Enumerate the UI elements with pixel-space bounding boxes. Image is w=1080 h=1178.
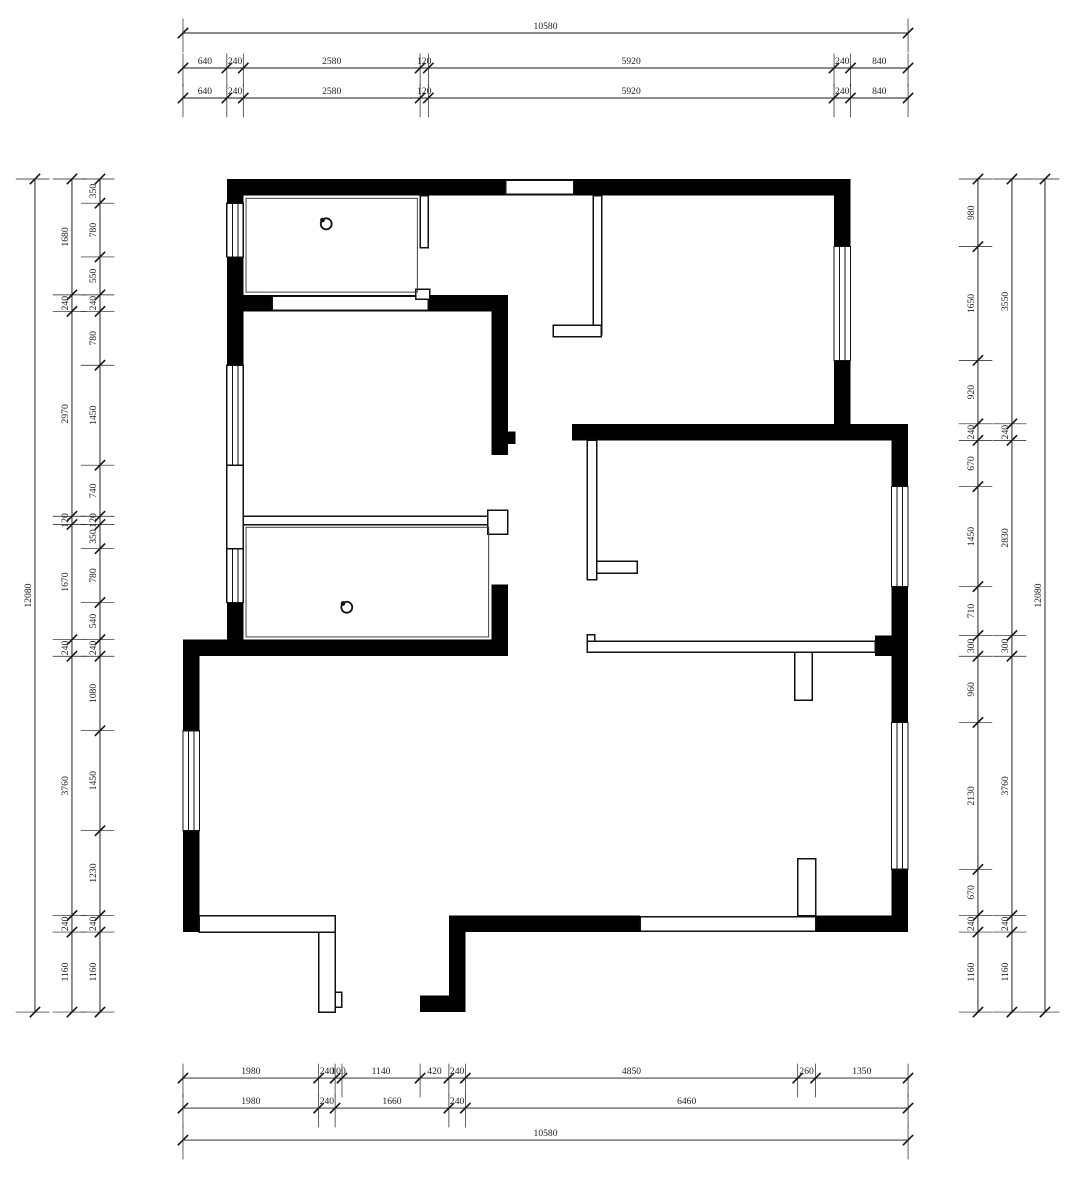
dimension-label: 1140 [372, 1066, 391, 1077]
dimension-label: 240 [60, 916, 71, 931]
dimension-label: 1080 [88, 684, 99, 703]
dimension-label: 120 [417, 86, 432, 97]
dimension-label: 300 [966, 638, 977, 653]
dimension-label: 350 [88, 184, 99, 199]
dimension-label: 1980 [241, 1096, 260, 1107]
dimension-label: 120 [417, 56, 432, 67]
dimension-label: 1450 [966, 527, 977, 546]
dimension-label: 240 [228, 86, 243, 97]
dimension-label: 260 [799, 1066, 814, 1077]
dimension-label: 2580 [322, 86, 341, 97]
dimension-label: 780 [88, 331, 99, 346]
dimension-label: 240 [1000, 425, 1011, 440]
dimension-label: 670 [966, 885, 977, 900]
dimension-label: 4850 [622, 1066, 641, 1077]
dimension-label: 920 [966, 385, 977, 400]
dimension-label: 240 [60, 641, 71, 656]
dimension-label: 3550 [1000, 292, 1011, 311]
dimension-label: 240 [1000, 916, 1011, 931]
left-wall-light-segment [227, 465, 243, 548]
dimension-label: 240 [966, 916, 977, 931]
right-wall-pier [875, 636, 908, 657]
dimension-label: 5920 [622, 86, 641, 97]
floor-plan-drawing: 1058064024025801205920240840640240258012… [0, 0, 1080, 1178]
canvas-background [0, 0, 1080, 1178]
dimension-label: 120 [60, 513, 71, 528]
dimension-label: 1160 [60, 962, 71, 981]
entry-closet-stub [553, 325, 601, 337]
drain-symbol-room1-dot [320, 218, 325, 223]
dimension-label: 1680 [60, 227, 71, 246]
bottom-door-jamb [798, 859, 816, 916]
window-left-1 [227, 203, 243, 257]
dimension-label: 12080 [23, 583, 34, 607]
dimension-label: 6460 [677, 1096, 696, 1107]
dimension-label: 5920 [622, 56, 641, 67]
dimension-label: 3760 [1000, 776, 1011, 795]
room3-door-jamb [488, 510, 508, 534]
window-right-middle [892, 487, 908, 587]
dimension-label: 1650 [966, 294, 977, 313]
drain-symbol-room3-dot [341, 601, 346, 606]
dimension-label: 2130 [966, 786, 977, 805]
dimension-label: 10580 [534, 21, 558, 32]
midright-partition-stub [597, 561, 637, 573]
dimension-label: 10580 [534, 1128, 558, 1139]
dimension-label: 960 [966, 682, 977, 697]
entry-closet-partition [593, 196, 601, 335]
dimension-label: 120 [88, 513, 99, 528]
dimension-label: 12080 [1033, 583, 1044, 607]
porch-wall-foot [420, 996, 465, 1013]
dimension-label: 1450 [88, 771, 99, 790]
dimension-label: 1980 [241, 1066, 260, 1077]
room1-partition-120 [420, 196, 428, 248]
dimension-label: 640 [198, 56, 213, 67]
dimension-label: 1350 [852, 1066, 871, 1077]
floor-plan-page: 1058064024025801205920240840640240258012… [0, 0, 1080, 1178]
dimension-label: 1450 [88, 405, 99, 424]
mid-horizontal-wall [572, 424, 908, 441]
dimension-label: 3760 [60, 776, 71, 795]
dimension-label: 1230 [88, 863, 99, 882]
dimension-label: 240 [320, 1096, 335, 1107]
bottom-wall-opening [640, 917, 815, 931]
dimension-label: 780 [88, 223, 99, 238]
dimension-label: 240 [450, 1096, 465, 1107]
bottom-wall-left-segment [449, 916, 640, 933]
dimension-label: 300 [1000, 638, 1011, 653]
dimension-label: 2970 [60, 404, 71, 423]
middle-left-wall-band [183, 640, 508, 657]
midright-room-partition [587, 440, 597, 579]
window-left-3 [227, 549, 243, 603]
dimension-label: 980 [966, 205, 977, 220]
porch-light-wall-horizontal [199, 916, 335, 933]
window-right-lower [892, 722, 908, 869]
dimension-label: 1160 [966, 962, 977, 981]
dimension-label: 350 [88, 529, 99, 544]
room2-room3-divider [243, 516, 488, 524]
room1-sliding-door [272, 296, 428, 310]
dimension-label: 100 [331, 1066, 346, 1077]
dimension-label: 240 [88, 296, 99, 311]
room2-wall-nub [508, 431, 516, 443]
window-right-upper [834, 247, 850, 361]
room3-right-wall [491, 585, 507, 657]
dimension-label: 2830 [1000, 528, 1011, 547]
dimension-label: 240 [450, 1066, 465, 1077]
porch-light-wall-notch [335, 992, 342, 1007]
dimension-label: 640 [198, 86, 213, 97]
dimension-label: 840 [872, 86, 887, 97]
dimension-label: 1670 [60, 572, 71, 591]
dimension-label: 1160 [1000, 962, 1011, 981]
door-leaf [795, 652, 812, 700]
dimension-label: 420 [427, 1066, 442, 1077]
dimension-label: 740 [88, 483, 99, 498]
dimension-label: 840 [872, 56, 887, 67]
dimension-label: 240 [835, 86, 850, 97]
room2-right-wall [491, 311, 507, 454]
room1-door-jamb [416, 289, 430, 299]
dimension-label: 540 [88, 614, 99, 629]
dimension-label: 240 [60, 296, 71, 311]
dimension-label: 240 [228, 56, 243, 67]
dimension-label: 2580 [322, 56, 341, 67]
dimension-label: 670 [966, 456, 977, 471]
window-left-4 [183, 731, 199, 831]
dimension-label: 1660 [382, 1096, 401, 1107]
top-wall-opening [506, 180, 574, 194]
dimension-label: 1160 [88, 962, 99, 981]
midright-thin-bottom-wall [587, 641, 875, 652]
dimension-label: 240 [835, 56, 850, 67]
dimension-label: 550 [88, 268, 99, 283]
dimension-label: 240 [88, 916, 99, 931]
dimension-label: 240 [966, 425, 977, 440]
dimension-label: 780 [88, 568, 99, 583]
window-left-2 [227, 365, 243, 465]
porch-light-wall-vertical [319, 932, 335, 1012]
dimension-label: 710 [966, 604, 977, 619]
bottom-wall-right-segment [816, 916, 909, 933]
dimension-label: 240 [88, 641, 99, 656]
